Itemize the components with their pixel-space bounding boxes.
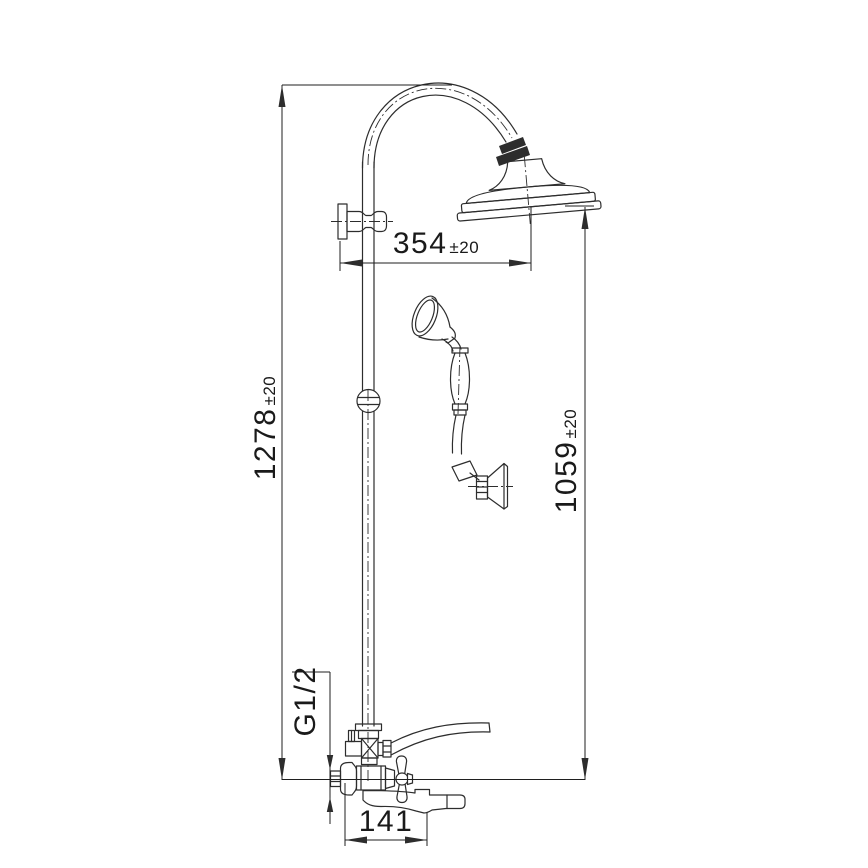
hose-connection xyxy=(391,723,490,755)
dimension-head-height-label: 1059 ±20 xyxy=(552,409,582,514)
spout-reach-value: 141 xyxy=(359,807,414,837)
dimension-spout-reach-label: 141 xyxy=(359,807,414,837)
head-height-tolerance: ±20 xyxy=(562,409,579,439)
head-reach-value: 354 xyxy=(393,229,448,259)
wall-connection xyxy=(331,763,357,796)
overall-height-value: 1278 xyxy=(251,408,281,481)
diverter-tee xyxy=(346,724,392,765)
gooseneck-arch xyxy=(363,83,518,168)
pipe-ball-joint xyxy=(357,390,380,413)
head-height-value: 1059 xyxy=(552,441,582,514)
connection-thread-value: G1/2 xyxy=(291,665,321,736)
shower-hose xyxy=(452,415,465,454)
shower-system-drawing xyxy=(0,0,868,868)
mixer-valve-body xyxy=(357,766,395,790)
hand-shower xyxy=(407,292,470,415)
dimension-overall-height-label: 1278 ±20 xyxy=(251,376,281,481)
technical-drawing-page: 354 ±20 1278 ±20 1059 ±20 G1/2 141 xyxy=(0,0,868,868)
dimension-head-reach-label: 354 ±20 xyxy=(393,229,479,259)
head-reach-tolerance: ±20 xyxy=(449,239,479,256)
overall-height-tolerance: ±20 xyxy=(261,376,278,406)
dimension-connection-thread-label: G1/2 xyxy=(291,665,321,736)
rain-shower-head xyxy=(453,150,602,230)
hand-shower-holder xyxy=(452,461,513,509)
